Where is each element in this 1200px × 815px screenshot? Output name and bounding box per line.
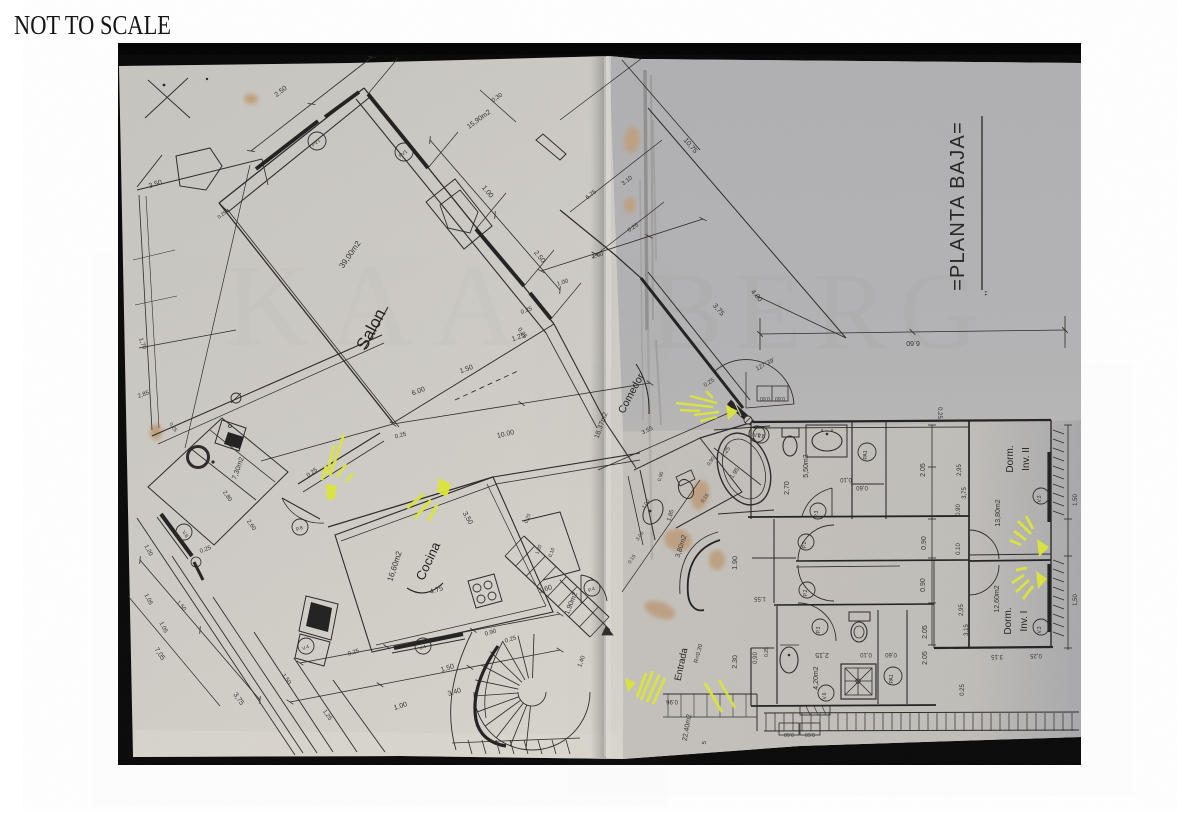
svg-text:NOT TO SCALE: NOT TO SCALE <box>14 10 171 40</box>
